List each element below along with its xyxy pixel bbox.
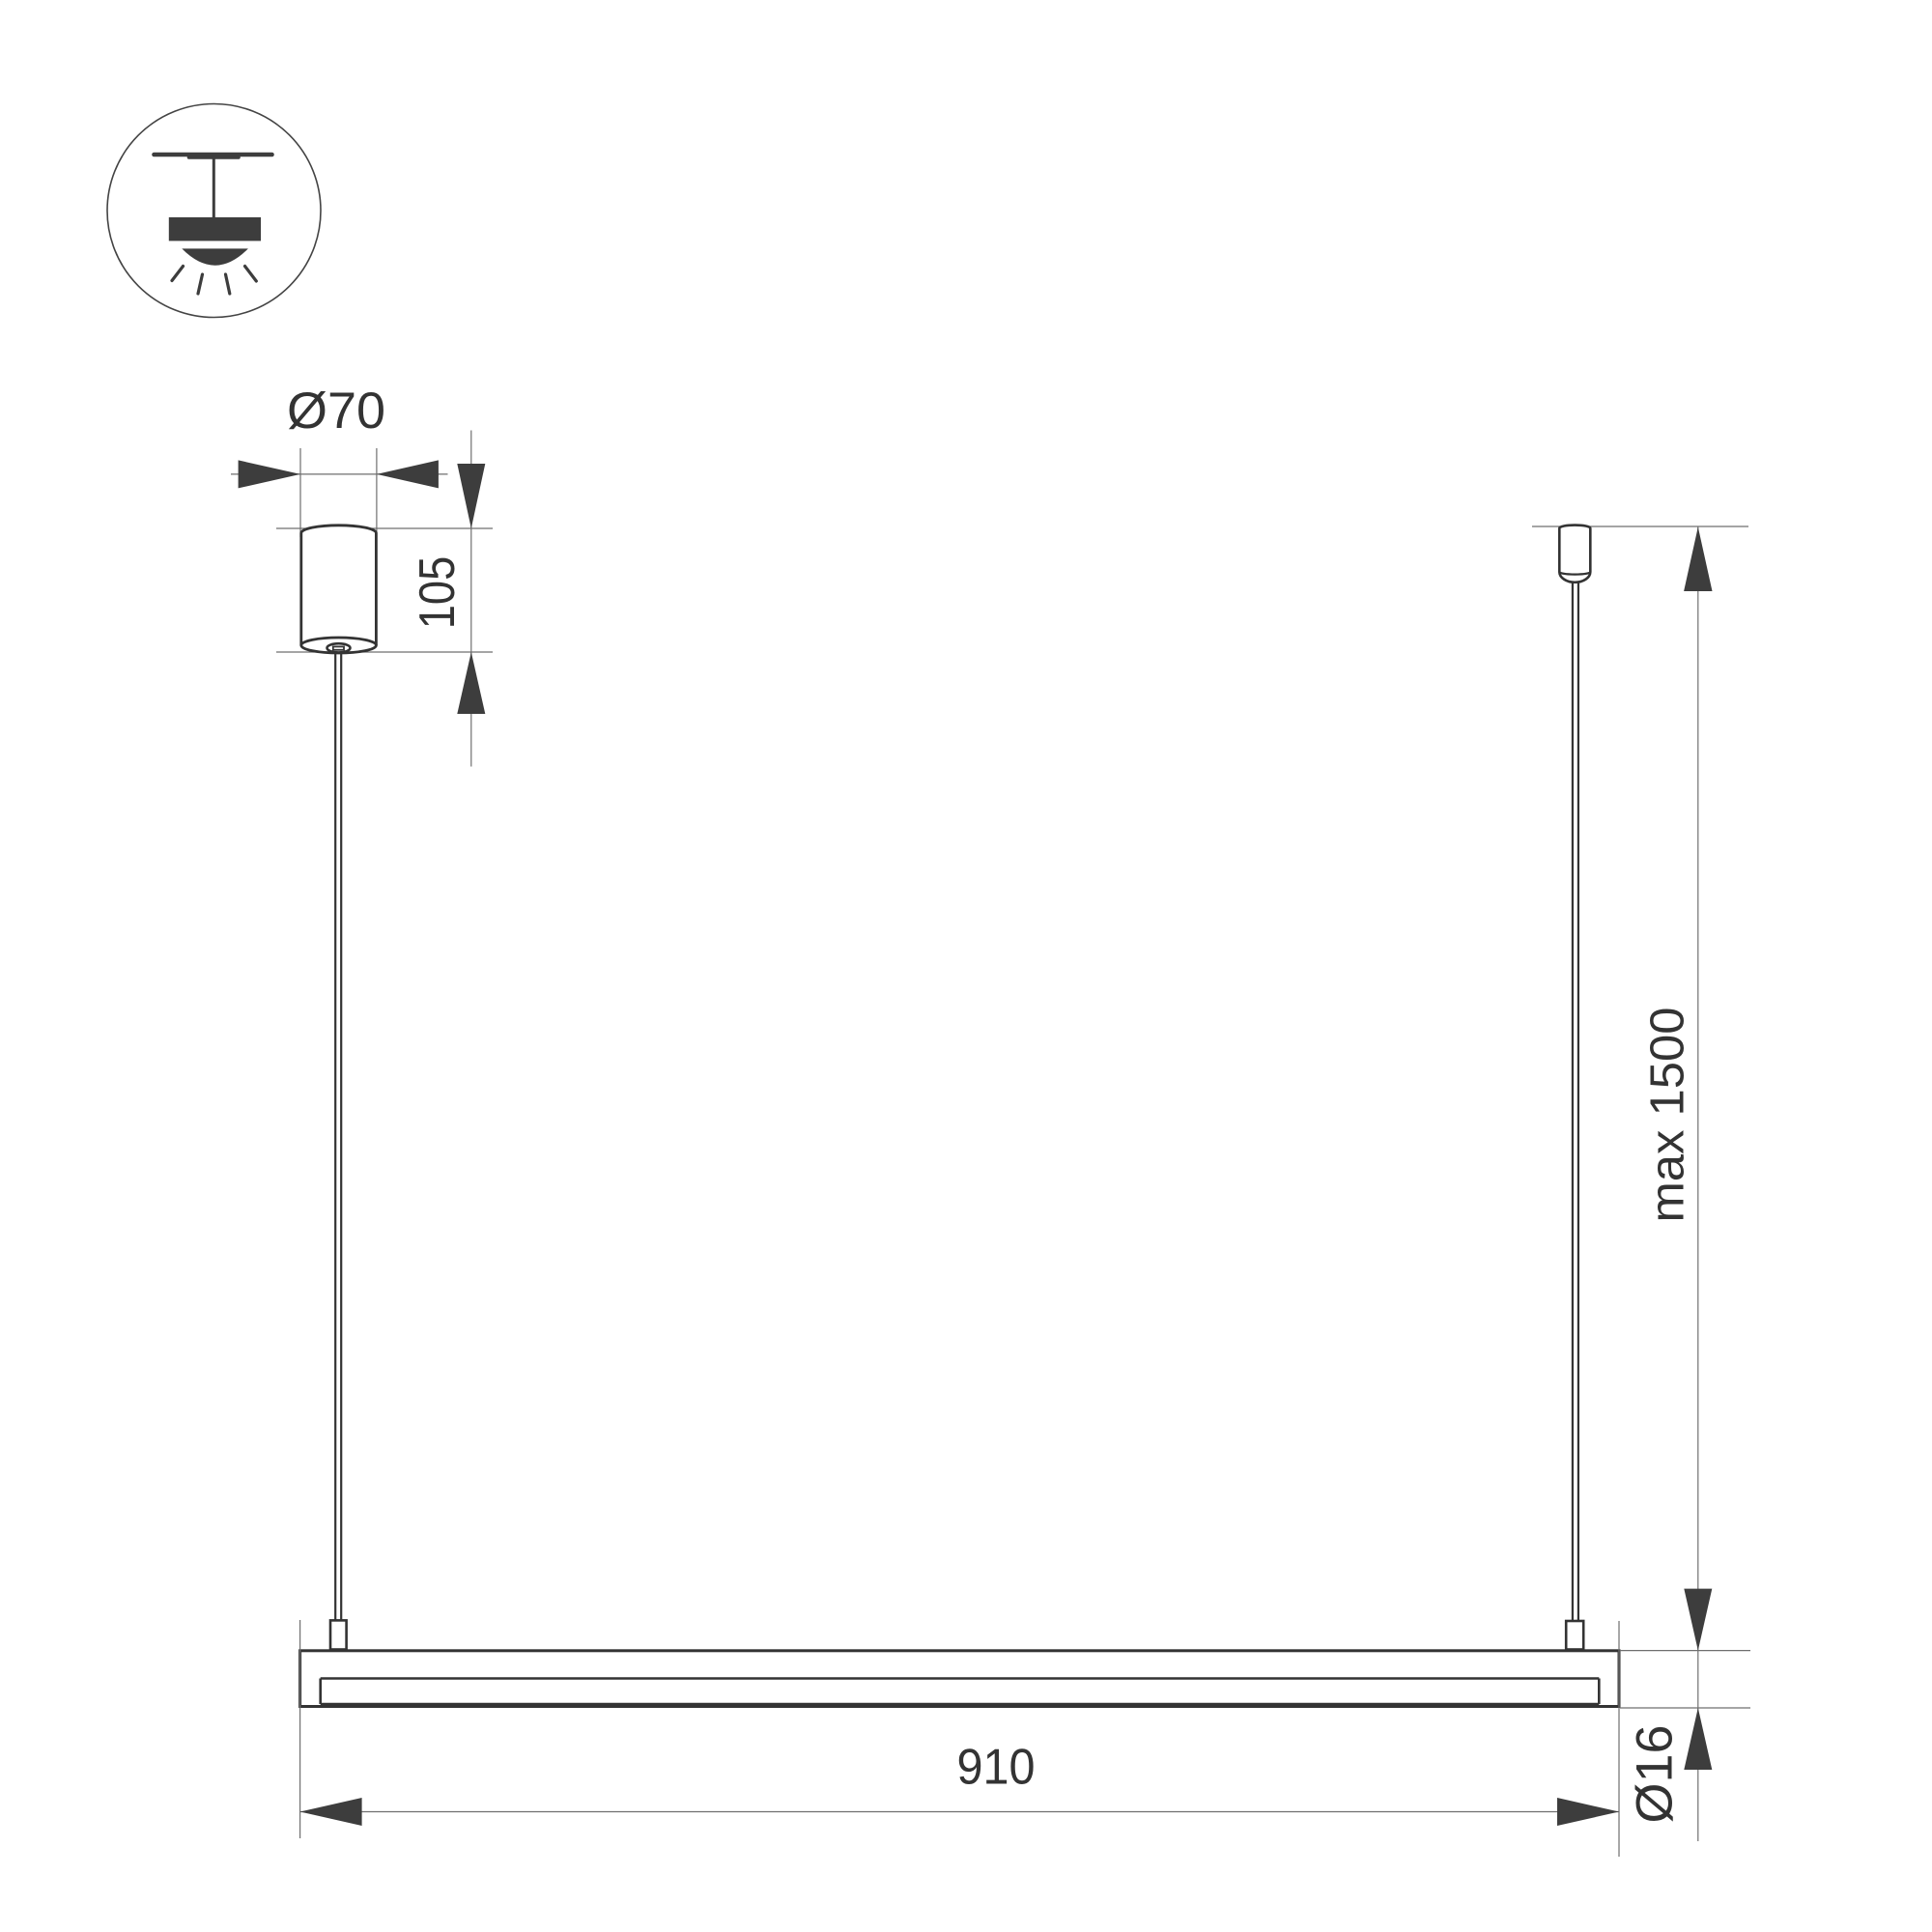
svg-text:Ø70: Ø70 bbox=[287, 383, 385, 440]
svg-text:Ø16: Ø16 bbox=[1627, 1725, 1684, 1824]
svg-text:910: 910 bbox=[957, 1739, 1036, 1795]
svg-text:max 1500: max 1500 bbox=[1641, 1008, 1694, 1223]
svg-text:105: 105 bbox=[410, 556, 466, 630]
